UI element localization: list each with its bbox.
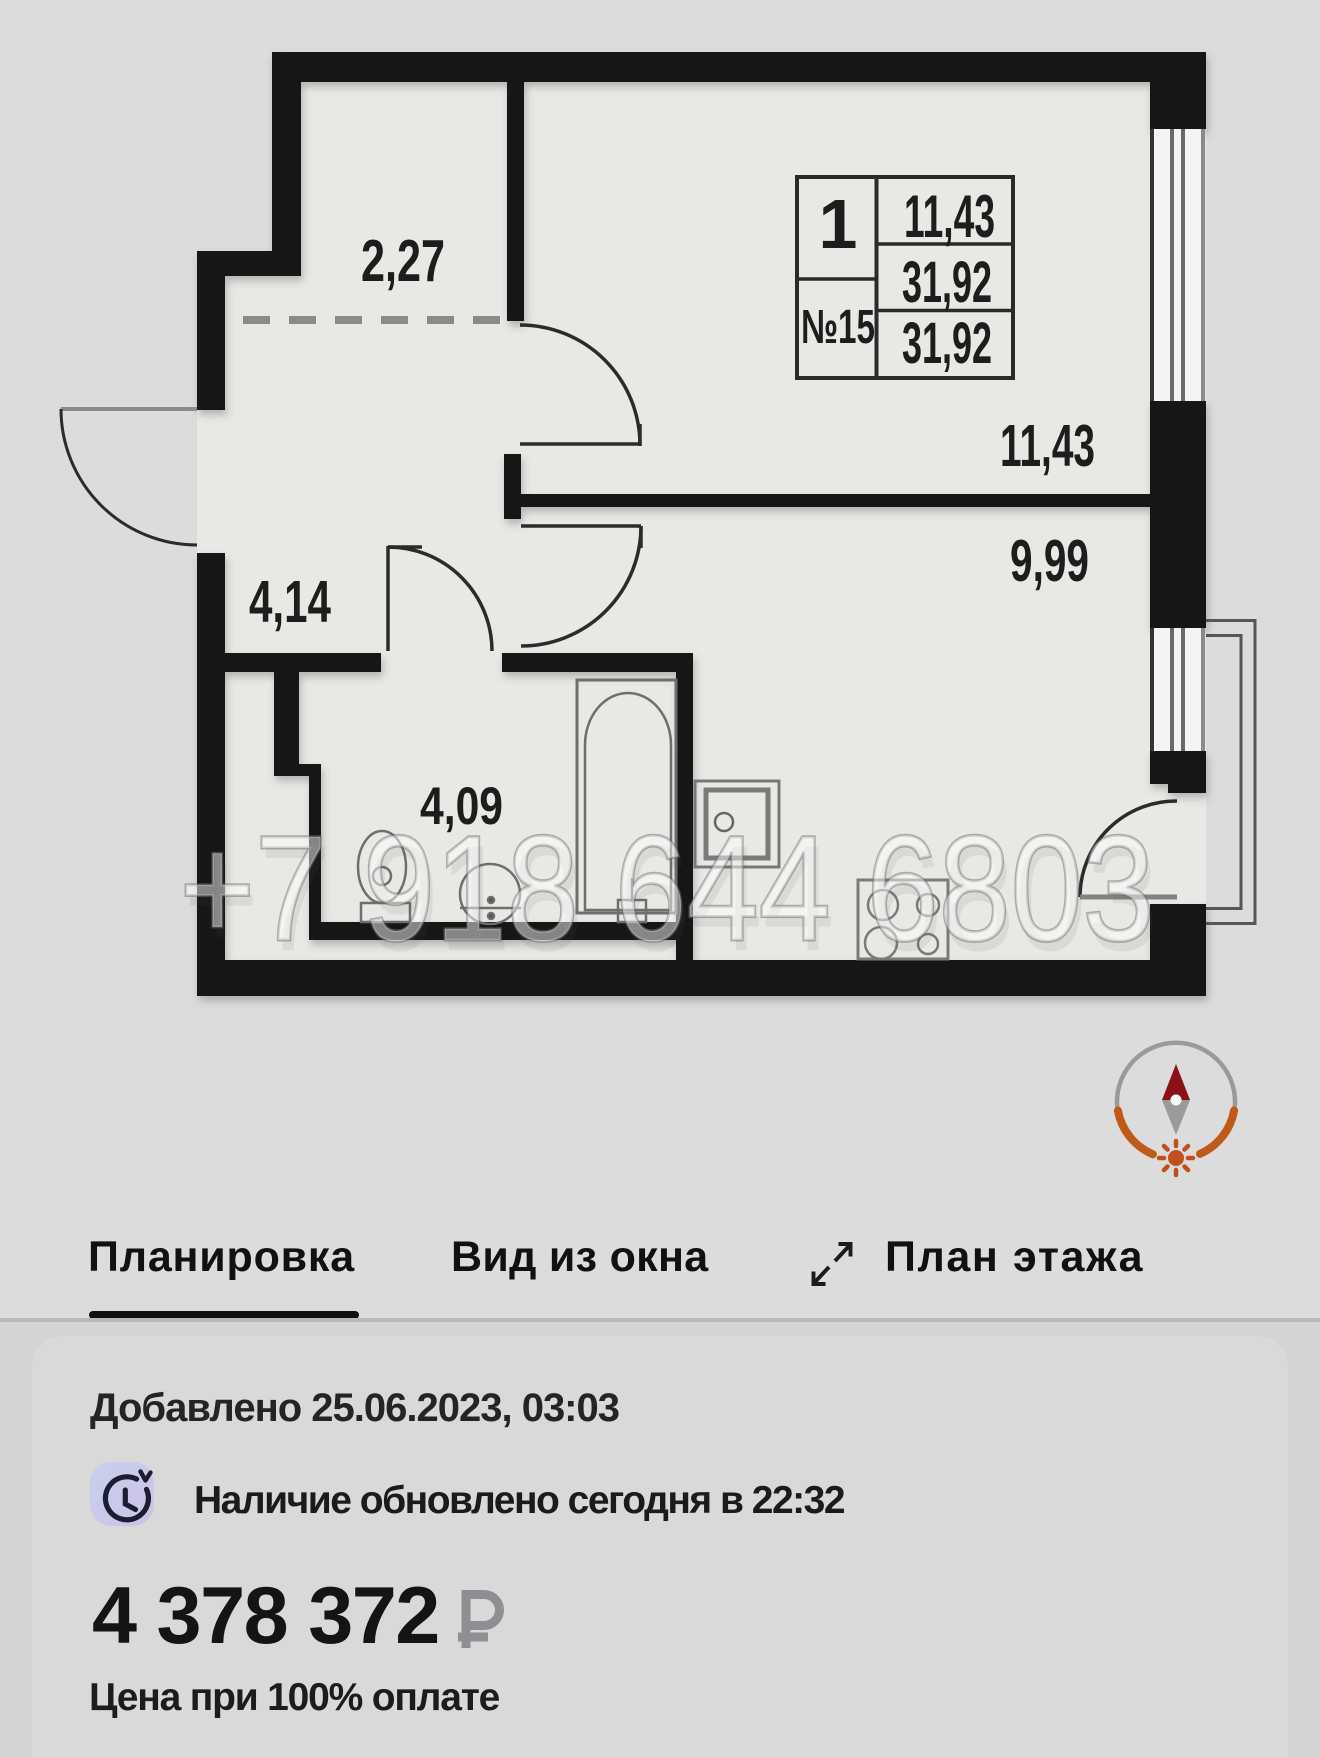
svg-text:11,43: 11,43 — [1000, 413, 1095, 479]
svg-text:9,99: 9,99 — [1010, 528, 1089, 594]
svg-text:11,43: 11,43 — [904, 183, 995, 250]
svg-text:31,92: 31,92 — [902, 311, 992, 376]
svg-text:1: 1 — [819, 185, 858, 263]
svg-text:4,14: 4,14 — [249, 569, 331, 635]
svg-text:31,92: 31,92 — [902, 250, 992, 315]
svg-text:№15: №15 — [801, 301, 875, 354]
svg-text:2,27: 2,27 — [361, 228, 445, 294]
svg-text:+7 918 644 6803: +7 918 644 6803 — [180, 804, 1155, 972]
